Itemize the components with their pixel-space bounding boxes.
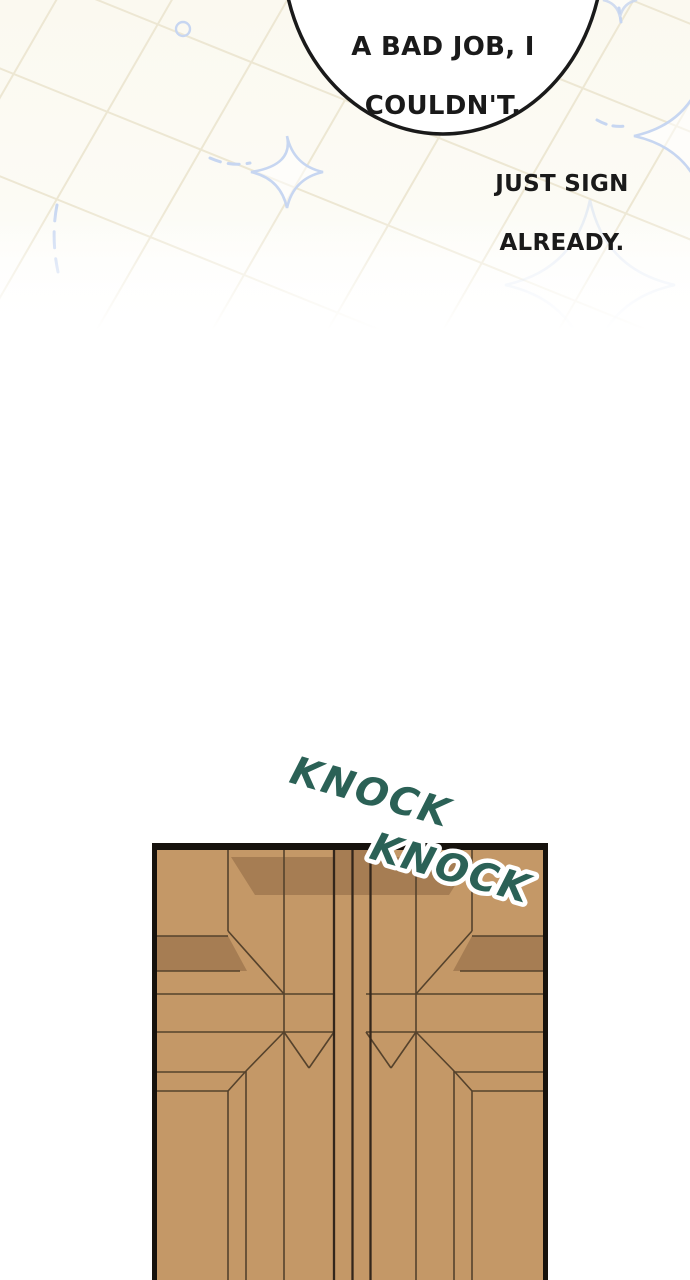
caption-line-1: JUST SIGN xyxy=(478,170,646,199)
caption-text: JUST SIGN ALREADY. xyxy=(478,141,646,287)
comic-panel: A BAD JOB, I COULDN'T. JUST SIGN ALREADY… xyxy=(0,0,690,1280)
sfx-layer: KNOCK KNOCK xyxy=(0,690,690,1020)
sfx-knock-2: KNOCK xyxy=(365,824,537,913)
speech-bubble-text: A BAD JOB, I COULDN'T. xyxy=(283,4,603,151)
caption-line-2: ALREADY. xyxy=(478,229,646,258)
speech-line-2: COULDN'T. xyxy=(283,92,603,121)
sfx-knock-1: KNOCK xyxy=(285,748,457,837)
speech-line-1: A BAD JOB, I xyxy=(283,33,603,62)
